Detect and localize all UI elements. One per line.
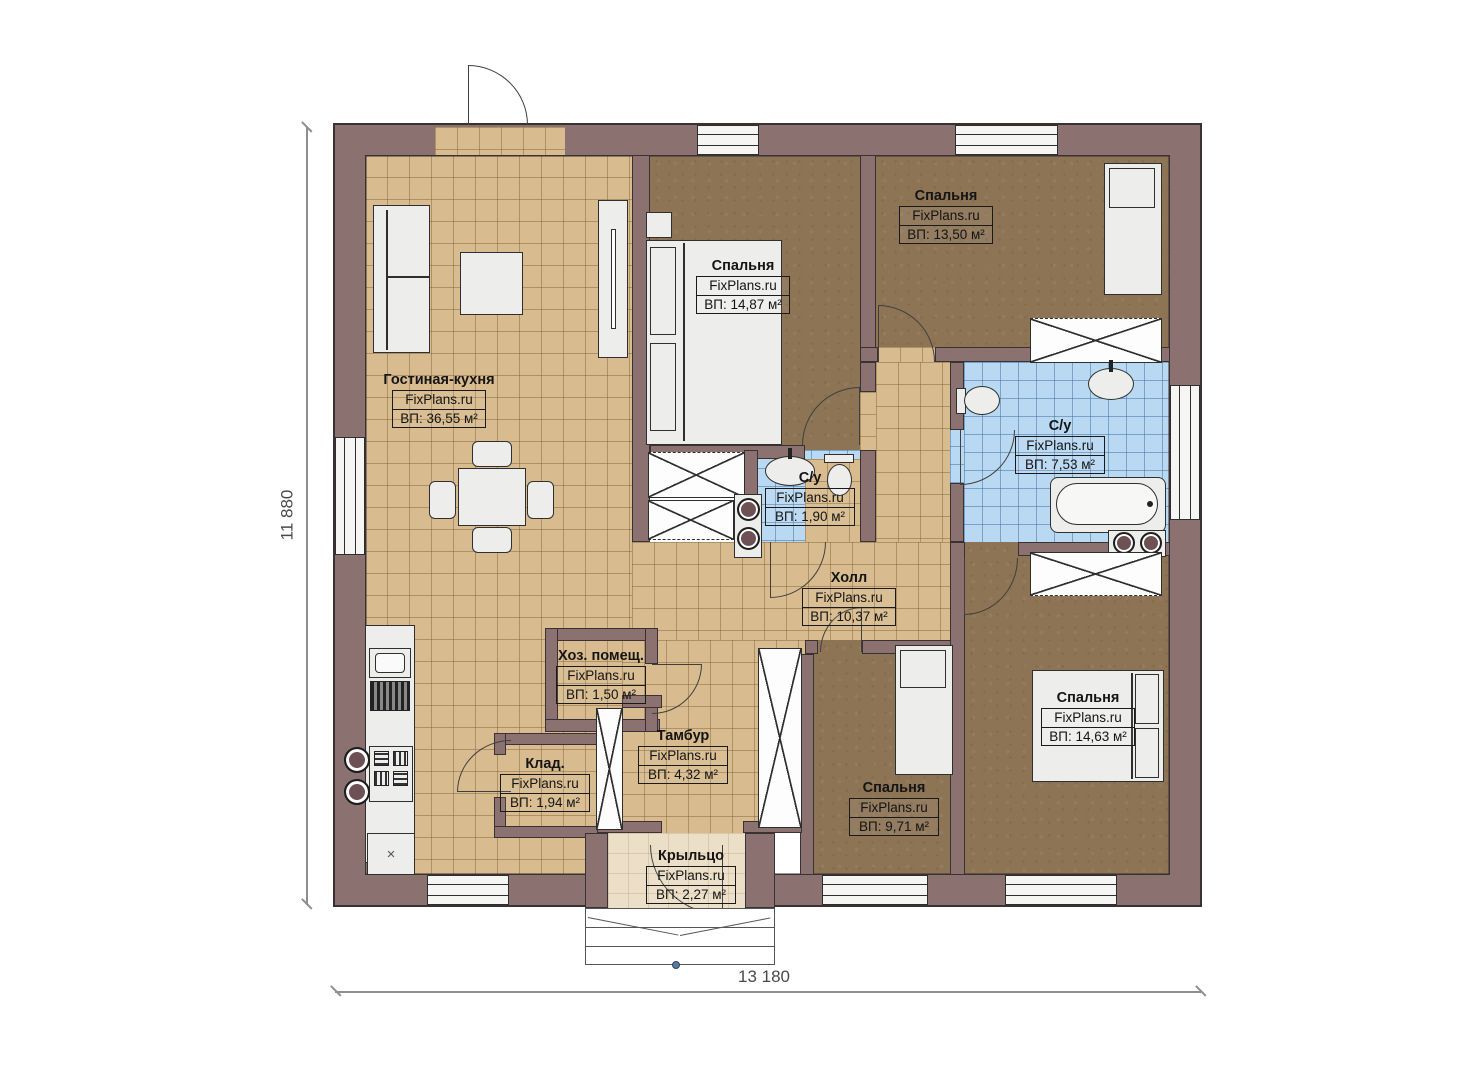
watermark: FixPlans.ru (1042, 709, 1134, 728)
wall-bed3-left (800, 654, 814, 875)
knob (344, 747, 370, 773)
room-area: ВП: 14,87 м² (697, 296, 789, 314)
room-area: ВП: 7,53 м² (1016, 456, 1104, 474)
room-area: ВП: 14,63 м² (1042, 728, 1134, 746)
bathtub (1050, 477, 1166, 533)
watermark: FixPlans.ru (1016, 437, 1104, 456)
window-top-bedroom2 (955, 125, 1058, 155)
coffee-table (460, 252, 523, 315)
watermark: FixPlans.ru (766, 489, 854, 508)
sink (1088, 368, 1134, 400)
room-name: Спальня (863, 780, 926, 796)
room-area: ВП: 1,50 м² (557, 686, 645, 704)
room-label-porch: Крыльцо FixPlans.ru ВП: 2,27 м² (636, 848, 746, 904)
washer-knob (1113, 532, 1135, 554)
toilet-bowl (964, 386, 1000, 415)
toilet (824, 454, 854, 463)
room-area: ВП: 13,50 м² (900, 226, 992, 244)
room-label-bathroom-big: С/у FixPlans.ru ВП: 7,53 м² (1010, 418, 1110, 474)
room-area: ВП: 9,71 м² (850, 818, 938, 836)
tv-stand (598, 200, 628, 358)
dishwasher: × (367, 833, 415, 875)
chair (472, 527, 512, 553)
window-right-bathroom (1170, 385, 1200, 520)
chair (472, 441, 512, 467)
stove (369, 746, 413, 802)
room-area: ВП: 10,37 м² (803, 608, 895, 626)
window-left-living (335, 437, 365, 555)
chair (527, 481, 554, 519)
room-label-vestibule: Тамбур FixPlans.ru ВП: 4,32 м² (626, 728, 740, 784)
door-arc-entry-terrace (468, 65, 528, 125)
washer-knob (737, 498, 760, 521)
washer-knob (1140, 532, 1162, 554)
watermark: FixPlans.ru (557, 667, 645, 686)
room-name: С/у (799, 470, 822, 486)
room-name: Холл (831, 570, 867, 586)
room-label-living-kitchen: Гостиная-кухня FixPlans.ru ВП: 36,55 м² (378, 372, 500, 428)
room-area: ВП: 2,27 м² (647, 886, 735, 904)
wardrobe-x (648, 452, 745, 498)
knob (344, 779, 370, 805)
window-bottom-kitchen (427, 875, 509, 905)
wall-smallbath-right (860, 450, 876, 542)
wall-porch-right (745, 833, 775, 908)
porch-steps (585, 908, 775, 965)
dimension-label-width: 13 180 (738, 967, 790, 987)
chair (429, 481, 456, 519)
watermark: FixPlans.ru (900, 207, 992, 226)
single-bed (1104, 163, 1162, 295)
room-area: ВП: 1,94 м² (501, 794, 589, 812)
window-bottom-bedroom4 (1005, 875, 1117, 905)
room-name: Клад. (525, 756, 564, 772)
wall-bed3-top-left (805, 640, 818, 654)
room-label-bedroom1: Спальня FixPlans.ru ВП: 14,87 м² (686, 258, 800, 314)
kitchen-sink (369, 648, 411, 678)
room-name: Хоз. помещ. (558, 648, 644, 664)
room-label-bedroom4: Спальня FixPlans.ru ВП: 14,63 м² (1031, 690, 1145, 746)
room-label-bathroom-small: С/у FixPlans.ru ВП: 1,90 м² (760, 470, 860, 526)
room-name: Гостиная-кухня (383, 372, 494, 388)
wall-storage-top (494, 733, 610, 745)
dish-drainer (370, 681, 410, 711)
watermark: FixPlans.ru (501, 775, 589, 794)
wall-porch-left (585, 833, 608, 908)
watermark: FixPlans.ru (639, 747, 727, 766)
watermark: FixPlans.ru (393, 391, 485, 410)
watermark: FixPlans.ru (697, 277, 789, 296)
window-top-bedroom1 (697, 125, 759, 155)
closet-x (596, 708, 623, 830)
room-area: ВП: 1,90 м² (766, 508, 854, 526)
room-name: С/у (1049, 418, 1072, 434)
dishwasher-mark: × (387, 846, 396, 863)
room-label-hall: Холл FixPlans.ru ВП: 10,37 м² (796, 570, 902, 626)
watermark: FixPlans.ru (803, 589, 895, 608)
room-label-bedroom3: Спальня FixPlans.ru ВП: 9,71 м² (841, 780, 947, 836)
room-name: Спальня (915, 188, 978, 204)
wall-corridor-left-stub (860, 362, 876, 392)
dimension-line-left (306, 127, 308, 905)
room-label-bedroom2: Спальня FixPlans.ru ВП: 13,50 м² (891, 188, 1001, 244)
room-name: Крыльцо (658, 848, 724, 864)
nightstand (646, 212, 672, 238)
wardrobe-x (1030, 318, 1162, 363)
sofa (373, 205, 430, 353)
room-name: Спальня (1057, 690, 1120, 706)
entry-door-opening (435, 127, 565, 155)
wall-bed2-bottom-left (860, 347, 878, 362)
watermark: FixPlans.ru (647, 867, 735, 886)
closet-x (758, 648, 802, 828)
wardrobe-x (1030, 552, 1162, 596)
sink-tap (788, 448, 792, 459)
room-name: Спальня (712, 258, 775, 274)
watermark: FixPlans.ru (850, 799, 938, 818)
steps-center-marker (672, 961, 680, 969)
dining-table (458, 468, 526, 526)
floor-plan-canvas: × (0, 0, 1473, 1080)
room-name: Тамбур (657, 728, 710, 744)
sink-tap (1109, 360, 1113, 372)
wall-corridor-bath-bottom (950, 483, 964, 542)
room-label-utility: Хоз. помещ. FixPlans.ru ВП: 1,50 м² (548, 648, 654, 704)
single-bed (895, 645, 953, 775)
room-area: ВП: 36,55 м² (393, 410, 485, 428)
dimension-line-bottom (335, 991, 1201, 993)
wall-utility-top (545, 628, 655, 641)
wardrobe-x (648, 500, 734, 540)
window-bottom-bedroom3 (822, 875, 928, 905)
dimension-label-height: 11 880 (277, 490, 297, 541)
washer-knob (737, 527, 760, 550)
room-label-storage: Клад. FixPlans.ru ВП: 1,94 м² (496, 756, 594, 812)
room-area: ВП: 4,32 м² (639, 766, 727, 784)
wall-bed1-bed2 (860, 155, 876, 365)
